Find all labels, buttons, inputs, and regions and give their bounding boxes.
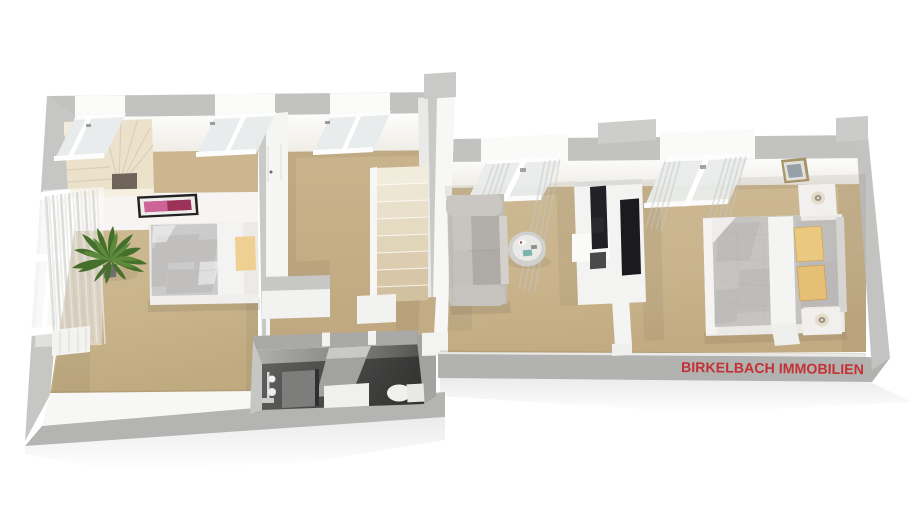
svg-text:BIRKELBACH IMMOBILIEN: BIRKELBACH IMMOBILIEN: [681, 360, 864, 378]
